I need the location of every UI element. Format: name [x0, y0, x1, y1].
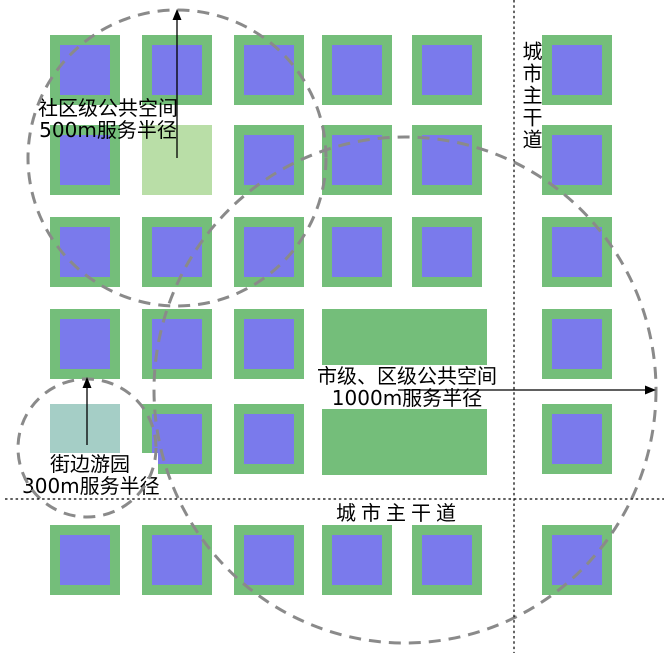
- city-district-space-label: 市级、区级公共空间 1000m服务半径: [314, 365, 500, 409]
- city-block: [542, 125, 612, 195]
- block-interior: [552, 135, 602, 185]
- block-interior: [60, 319, 110, 369]
- block-interior: [152, 414, 202, 464]
- city-block: [412, 35, 482, 105]
- horizontal-main-road-label: 城市主干道: [336, 502, 461, 524]
- city-block: [234, 125, 304, 195]
- block-interior: [60, 45, 110, 95]
- block-interior: [60, 227, 110, 277]
- city-block: [234, 309, 304, 379]
- block-interior: [152, 227, 202, 277]
- block-interior: [552, 319, 602, 369]
- street-garden-label-line1: 街边游园: [22, 453, 158, 475]
- block-interior: [332, 227, 382, 277]
- city-block: [50, 525, 120, 595]
- plaza-radius-arrow-head: [645, 386, 656, 395]
- city-block: [542, 404, 612, 474]
- city-block: [412, 525, 482, 595]
- city-block: [50, 309, 120, 379]
- block-interior: [332, 45, 382, 95]
- block-interior: [152, 319, 202, 369]
- block-interior: [552, 414, 602, 464]
- block-interior: [422, 227, 472, 277]
- community-space-label-line2: 500m服务半径: [18, 119, 198, 141]
- city-block: [50, 217, 120, 287]
- block-interior: [332, 135, 382, 185]
- city-block: [412, 125, 482, 195]
- urban-public-space-service-radius-diagram: 社区级公共空间 500m服务半径 街边游园 300m服务半径 市级、区级公共空间…: [0, 0, 664, 653]
- city-block: [322, 217, 392, 287]
- city-block: [50, 35, 120, 105]
- city-block: [542, 35, 612, 105]
- city-block: [542, 309, 612, 379]
- city-district-space-label-line2: 1000m服务半径: [314, 387, 500, 409]
- block-interior: [244, 45, 294, 95]
- city-block: [322, 35, 392, 105]
- block-interior: [152, 535, 202, 585]
- block-interior: [422, 535, 472, 585]
- street-garden-label: 街边游园 300m服务半径: [22, 453, 158, 497]
- block-interior: [244, 535, 294, 585]
- block-interior: [422, 45, 472, 95]
- block-interior: [60, 535, 110, 585]
- city-block: [234, 525, 304, 595]
- block-interior: [244, 135, 294, 185]
- block-interior: [552, 535, 602, 585]
- vertical-main-road-label: 城市主干道: [520, 41, 542, 151]
- city-block: [142, 525, 212, 595]
- block-interior: [332, 535, 382, 585]
- city-block: [412, 217, 482, 287]
- city-block: [234, 217, 304, 287]
- city-block: [542, 217, 612, 287]
- block-interior: [552, 227, 602, 277]
- city-district-space-label-line1: 市级、区级公共空间: [314, 365, 500, 387]
- street-garden-label-line2: 300m服务半径: [22, 475, 158, 497]
- city-block: [142, 309, 212, 379]
- city-block: [322, 125, 392, 195]
- block-interior: [244, 227, 294, 277]
- block-interior: [152, 45, 202, 95]
- city-block: [142, 217, 212, 287]
- community-radius-arrow-head: [173, 9, 182, 20]
- city-block: [322, 525, 392, 595]
- block-interior: [60, 135, 110, 185]
- block-interior: [552, 45, 602, 95]
- block-interior: [244, 414, 294, 464]
- community-space-label: 社区级公共空间 500m服务半径: [18, 97, 198, 141]
- block-interior: [244, 319, 294, 369]
- city-block: [542, 525, 612, 595]
- community-space-label-line1: 社区级公共空间: [18, 97, 198, 119]
- city-block: [234, 35, 304, 105]
- city-block: [234, 404, 304, 474]
- city-block: [142, 35, 212, 105]
- block-interior: [422, 135, 472, 185]
